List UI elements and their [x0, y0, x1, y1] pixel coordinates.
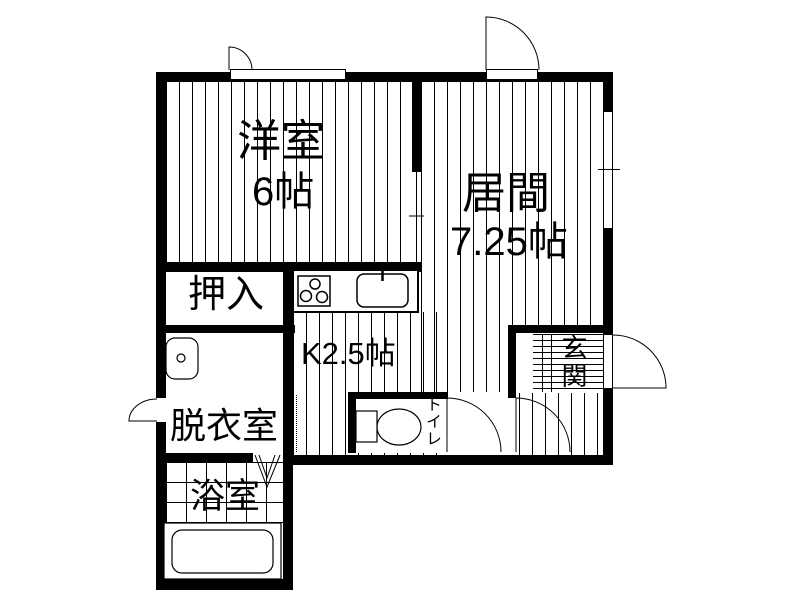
stove-icon: [298, 276, 330, 306]
living-room-door-swing-icon: [486, 17, 539, 70]
kitchen-label: K2.5帖: [301, 338, 396, 369]
western-room-door-swing-icon: [229, 47, 252, 70]
bathtub-area: [164, 523, 281, 579]
wall-bathroom-bottom: [156, 579, 293, 590]
floor-plan: 洋室 6帖 居間 7.25帖 押入 K2.5帖 脱衣室 浴室 玄関 トイレ: [0, 0, 800, 600]
entrance-door-swing-icon: [613, 335, 666, 388]
bathroom-label: 浴室: [190, 479, 260, 514]
basin-drain-icon: [177, 354, 185, 362]
wash-basin-icon: [166, 338, 198, 379]
kitchen-sink-icon: [357, 274, 408, 307]
living-room-east-window: [603, 111, 613, 229]
wall-top: [156, 72, 613, 82]
dressing-room-west-door-opening: [156, 398, 166, 422]
kitchen-dressing-opening-line: [296, 395, 297, 452]
toilet-label: トイレ: [423, 396, 439, 447]
living-room-size: 7.25帖: [450, 222, 568, 262]
wall-bathroom-right: [283, 455, 293, 590]
wall-bottom-main: [283, 455, 613, 465]
stove-burner-icon: [310, 279, 320, 289]
western-room-label: 洋室: [237, 120, 325, 164]
dressing-room-door-swing-icon: [129, 399, 157, 421]
wall-entrance-top: [508, 325, 613, 333]
wall-entrance-left: [508, 325, 516, 398]
toilet-door-swing-icon: [447, 398, 501, 452]
entrance-east-door-frame: [603, 334, 613, 389]
wall-bathroom-top: [156, 453, 253, 462]
bathroom-door-opening: [253, 453, 283, 462]
closet-label: 押入: [188, 276, 264, 314]
wall-closet-bottom: [156, 325, 295, 333]
kitchen-counter: [293, 270, 418, 312]
entrance-hall-floor: [519, 393, 603, 455]
wall-closet-dressing-right: [283, 262, 293, 455]
stove-burner-icon: [317, 292, 328, 303]
stove-burner-icon: [301, 291, 312, 302]
western-room-size: 6帖: [252, 172, 314, 212]
entrance-label: 玄関: [560, 334, 586, 390]
bathtub-icon: [172, 530, 273, 573]
wall-partition-western-living: [412, 82, 421, 172]
dressing-room-label: 脱衣室: [170, 408, 278, 444]
wall-toilet-left: [348, 392, 356, 453]
western-room-north-door-frame: [230, 69, 346, 80]
living-room-label: 居間: [462, 172, 550, 216]
living-room-north-door-frame: [486, 69, 538, 80]
